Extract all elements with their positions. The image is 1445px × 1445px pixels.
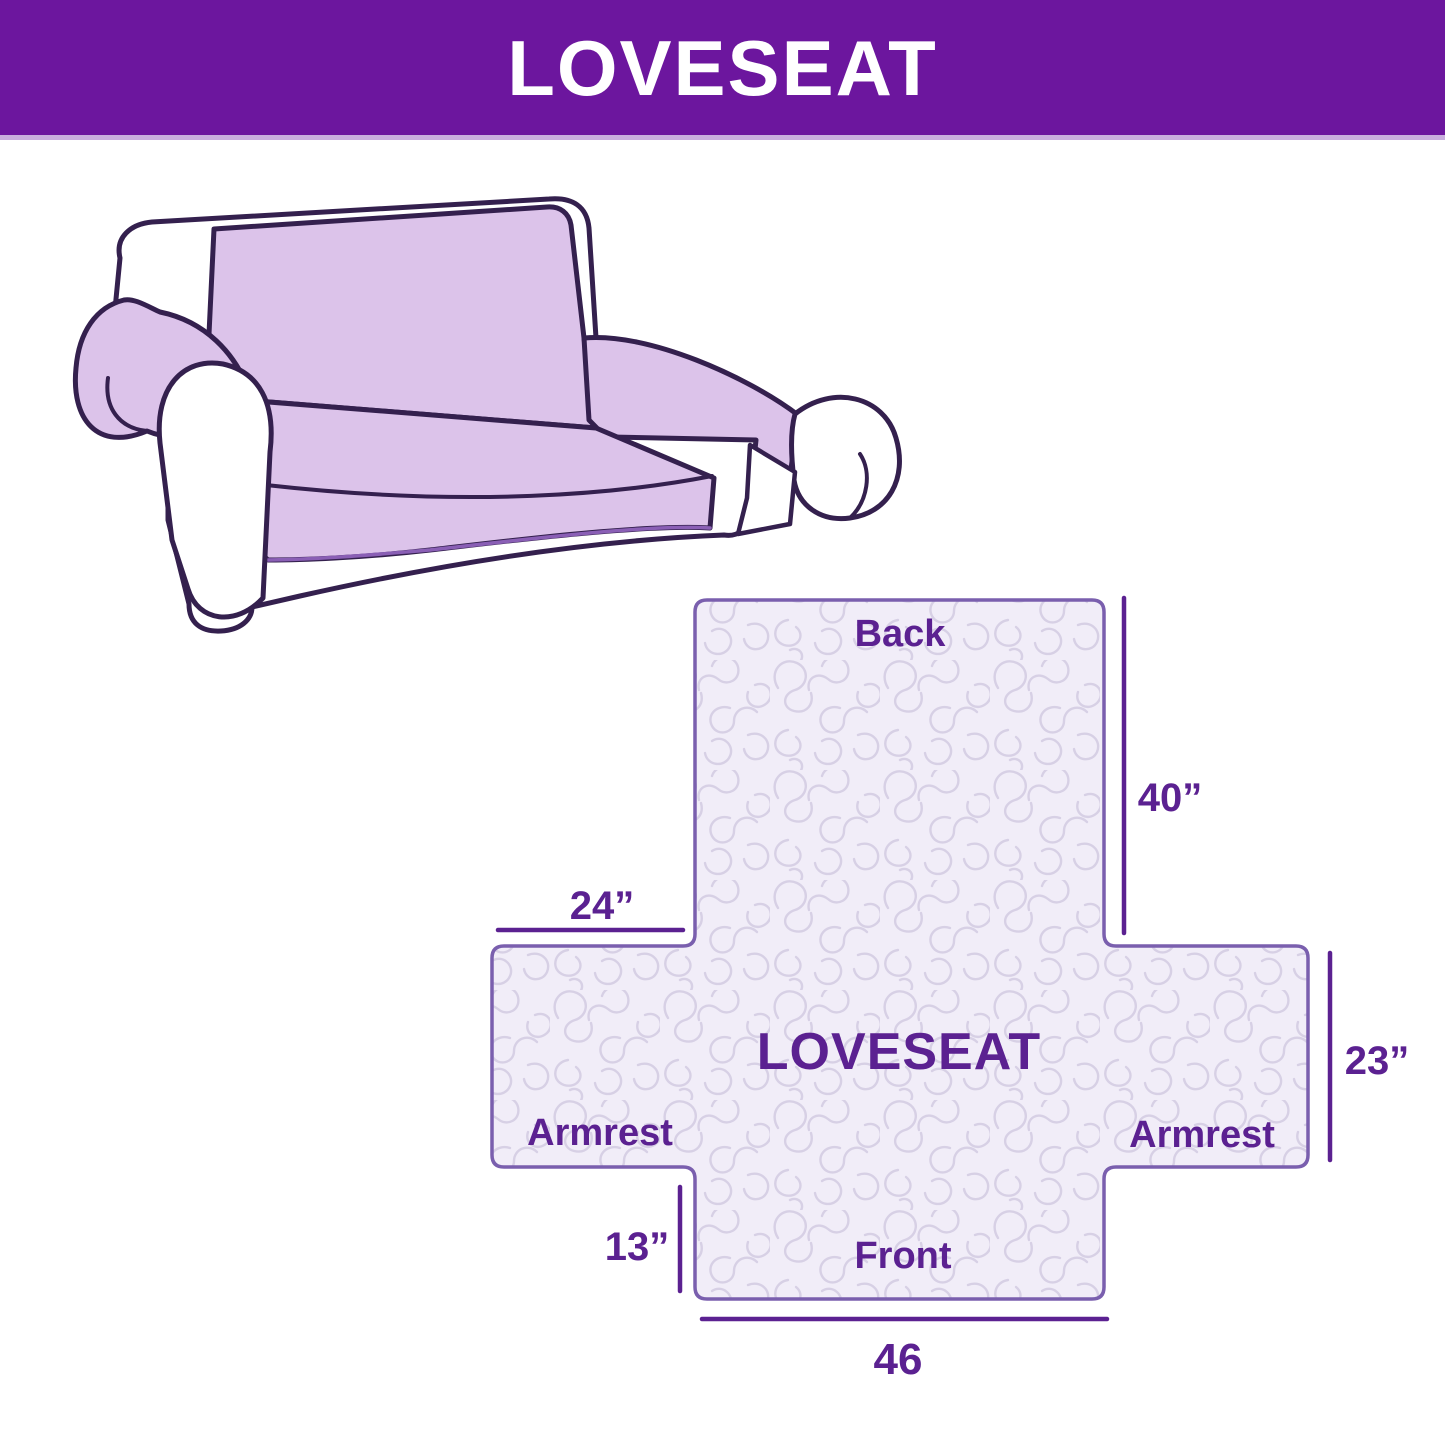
sofa-back-cover xyxy=(206,207,596,428)
cover-cross xyxy=(492,600,1308,1299)
dim-armrest-width: 24” xyxy=(570,886,635,926)
diagram-armrest-right-label: Armrest xyxy=(1129,1116,1275,1154)
sofa-right-arm-curl xyxy=(850,454,867,518)
sofa-right-arm-cover xyxy=(584,337,798,508)
diagram-center-label: LOVESEAT xyxy=(757,1026,1041,1078)
header-banner: LOVESEAT xyxy=(0,0,1445,140)
header-title: LOVESEAT xyxy=(507,29,938,107)
sofa-right-arm-front xyxy=(738,445,795,534)
dim-front-drop: 13” xyxy=(605,1227,670,1267)
sofa-left-arm-curl xyxy=(107,378,147,431)
sofa-seat-crease xyxy=(266,476,712,497)
sofa-back-outer xyxy=(112,199,596,424)
dim-armrest-depth: 23” xyxy=(1345,1041,1410,1081)
dim-front-width: 46 xyxy=(874,1338,923,1382)
loveseat-infographic: LOVESEAT xyxy=(0,0,1445,1445)
dim-back-length: 40” xyxy=(1138,778,1203,818)
artwork-canvas xyxy=(0,0,1445,1445)
sofa-illustration xyxy=(75,199,899,631)
cover-diagram-shape xyxy=(492,598,1330,1319)
sofa-left-arm-cover xyxy=(75,300,251,438)
sofa-seat-cover xyxy=(204,397,714,560)
sofa-right-arm-roll xyxy=(792,397,900,518)
sofa-left-arm-front xyxy=(159,363,271,617)
diagram-armrest-left-label: Armrest xyxy=(527,1114,673,1152)
diagram-front-label: Front xyxy=(854,1237,951,1275)
diagram-back-label: Back xyxy=(855,615,946,653)
sofa-cover-hem xyxy=(268,527,710,560)
sofa-base xyxy=(168,428,756,631)
